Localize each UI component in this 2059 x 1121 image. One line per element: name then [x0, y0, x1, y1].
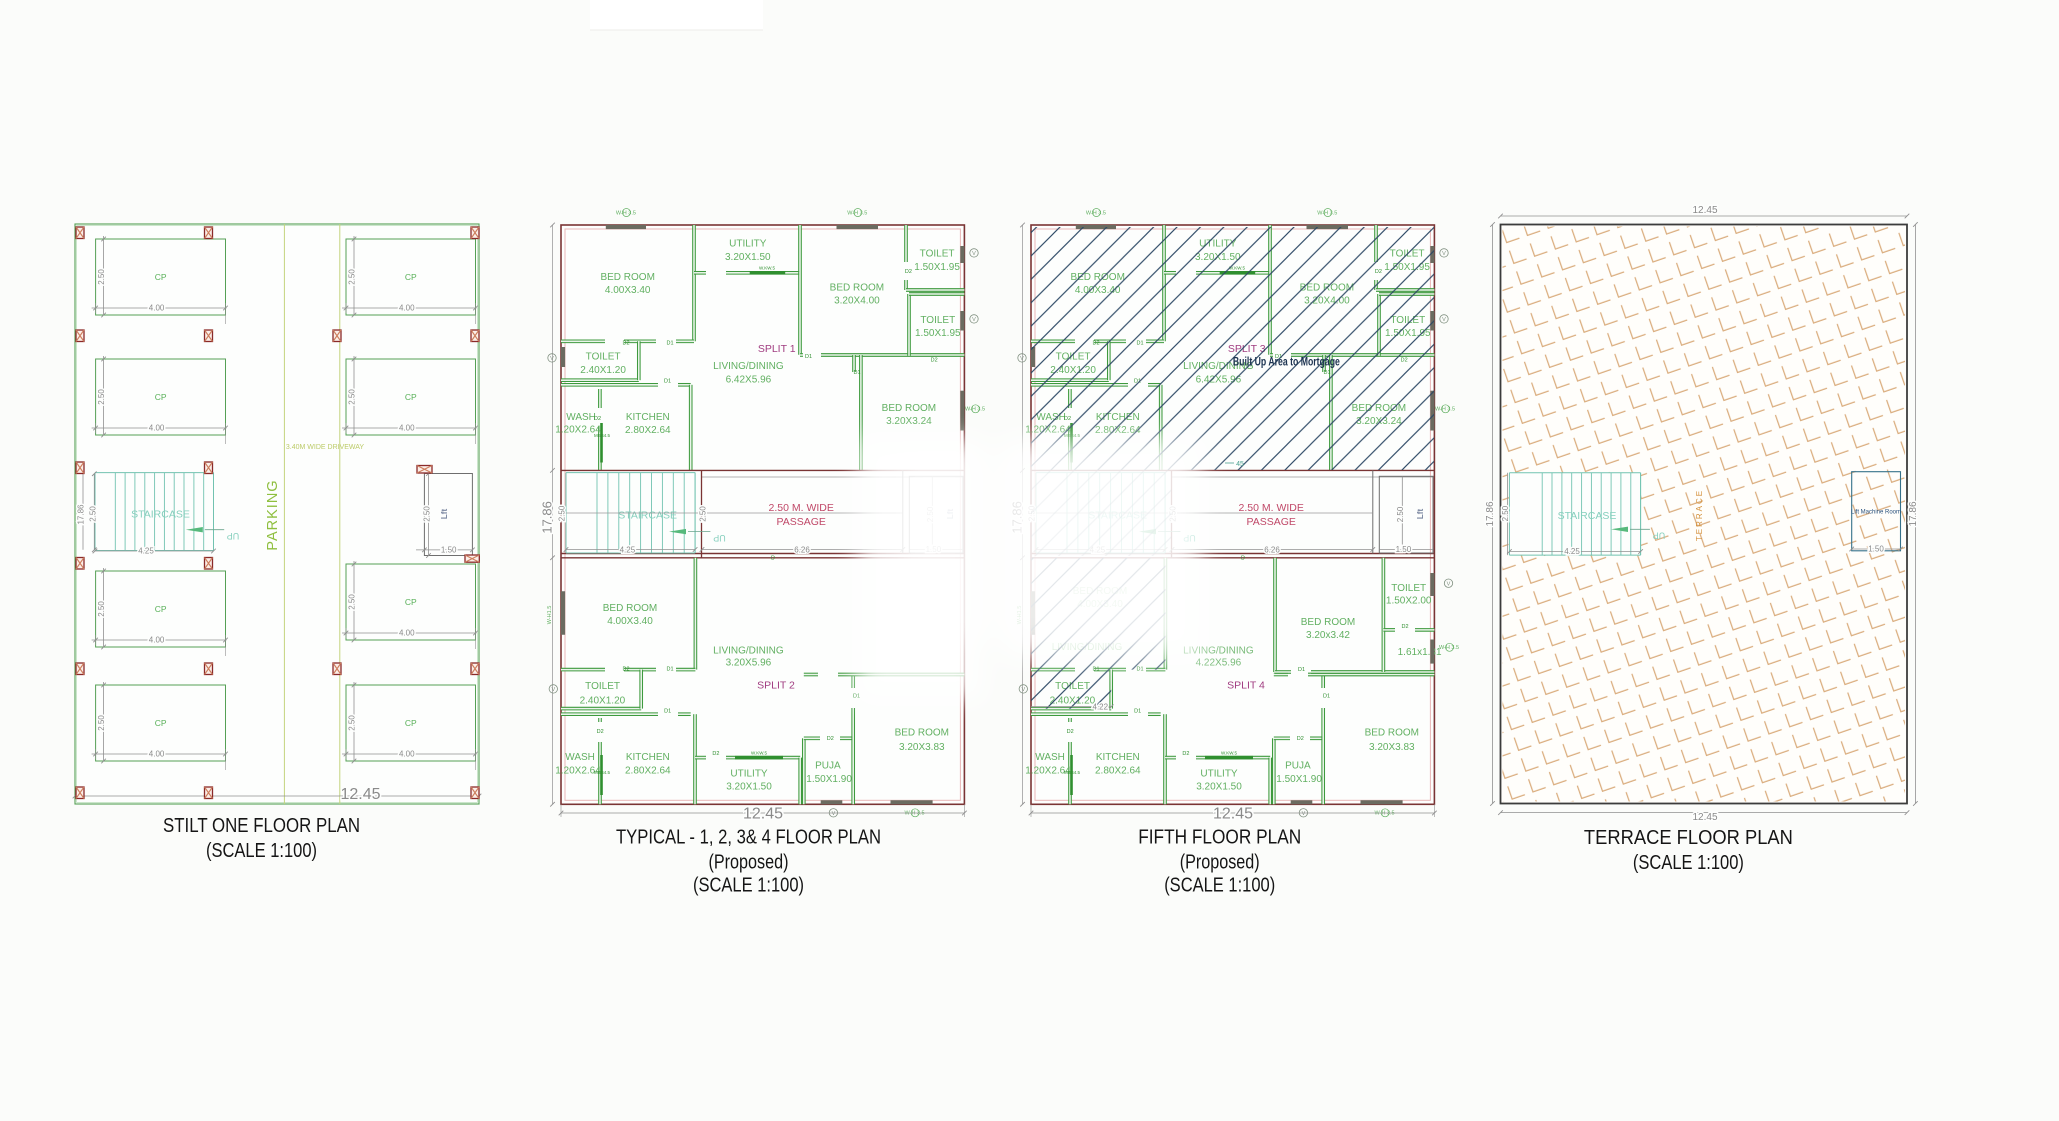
svg-text:45: 45	[1236, 461, 1244, 468]
svg-text:17.86: 17.86	[1908, 501, 1919, 526]
svg-text:4.25: 4.25	[620, 545, 636, 554]
svg-text:1.50X1.95: 1.50X1.95	[914, 262, 960, 273]
svg-text:V: V	[1442, 251, 1446, 257]
svg-text:2.50: 2.50	[97, 269, 106, 285]
svg-text:MBB4.5: MBB4.5	[1064, 770, 1081, 775]
svg-text:12.45: 12.45	[743, 806, 783, 823]
svg-text:D1: D1	[664, 379, 671, 385]
svg-text:UTILITY: UTILITY	[730, 769, 768, 780]
svg-text:2.80X2.64: 2.80X2.64	[625, 765, 671, 776]
svg-text:D: D	[771, 556, 775, 562]
svg-text:UP: UP	[713, 533, 726, 543]
svg-text:3.20x3.42: 3.20x3.42	[1306, 630, 1350, 641]
svg-text:2.50: 2.50	[1396, 506, 1405, 522]
svg-text:W-H 3.5: W-H 3.5	[1439, 645, 1459, 651]
svg-text:D1: D1	[1298, 667, 1305, 673]
svg-text:2.50 M. WIDE: 2.50 M. WIDE	[1239, 502, 1304, 514]
svg-text:W-H 3.5: W-H 3.5	[1375, 811, 1395, 817]
svg-text:W-H 3.5: W-H 3.5	[965, 407, 985, 413]
svg-text:TOILET: TOILET	[586, 352, 621, 363]
svg-text:17.86: 17.86	[77, 504, 86, 525]
svg-text:2.50: 2.50	[1501, 505, 1510, 521]
svg-text:2.50 M. WIDE: 2.50 M. WIDE	[769, 502, 834, 514]
svg-text:D2: D2	[1401, 624, 1408, 630]
svg-text:WASH: WASH	[565, 752, 595, 763]
svg-text:KITCHEN: KITCHEN	[626, 752, 670, 763]
svg-text:4.00: 4.00	[149, 304, 165, 313]
svg-text:6.26: 6.26	[794, 545, 810, 554]
svg-text:V: V	[832, 811, 836, 817]
svg-text:1.61x1.31: 1.61x1.31	[1398, 647, 1442, 658]
svg-text:2.40X1.20: 2.40X1.20	[580, 696, 626, 707]
svg-text:PUJA: PUJA	[815, 761, 841, 772]
svg-text:4.00: 4.00	[399, 750, 415, 759]
svg-text:D2: D2	[594, 416, 601, 422]
svg-text:3.20X3.83: 3.20X3.83	[1369, 742, 1415, 753]
svg-text:4.00: 4.00	[399, 424, 415, 433]
svg-text:MBB4.5: MBB4.5	[594, 770, 611, 775]
svg-text:D2: D2	[597, 729, 604, 735]
svg-text:3.20X1.50: 3.20X1.50	[726, 782, 772, 793]
svg-text:UP: UP	[227, 531, 240, 541]
svg-text:STILT ONE FLOOR PLAN: STILT ONE FLOOR PLAN	[163, 815, 360, 837]
svg-text:V: V	[1447, 581, 1451, 587]
svg-text:3.20X1.50: 3.20X1.50	[1196, 782, 1242, 793]
svg-text:D1: D1	[664, 709, 671, 715]
svg-text:1.50: 1.50	[441, 545, 457, 554]
svg-text:TYPICAL - 1, 2, 3& 4 FLOOR PLA: TYPICAL - 1, 2, 3& 4 FLOOR PLAN	[616, 825, 881, 848]
svg-text:BED ROOM: BED ROOM	[1301, 617, 1355, 628]
svg-text:D2: D2	[827, 736, 834, 742]
svg-text:W.KW.5: W.KW.5	[759, 266, 776, 271]
svg-text:1.50X2.00: 1.50X2.00	[1386, 595, 1432, 606]
svg-text:3.20X4.00: 3.20X4.00	[834, 296, 880, 307]
svg-text:STAIRCASE: STAIRCASE	[1558, 510, 1617, 522]
svg-text:WASH: WASH	[566, 412, 596, 423]
svg-text:LIVING/DINING: LIVING/DINING	[713, 361, 784, 372]
svg-text:12.45: 12.45	[1692, 205, 1717, 216]
svg-text:(SCALE 1:100): (SCALE 1:100)	[206, 840, 317, 862]
svg-text:CP: CP	[155, 604, 167, 614]
svg-text:W-H 3.5: W-H 3.5	[1317, 210, 1337, 216]
svg-text:BED ROOM: BED ROOM	[882, 403, 936, 414]
svg-text:CP: CP	[155, 718, 167, 728]
svg-text:4.22: 4.22	[1093, 703, 1109, 712]
svg-text:17.86: 17.86	[1485, 501, 1496, 526]
svg-text:2.50: 2.50	[97, 715, 106, 731]
svg-text:CP: CP	[405, 392, 417, 402]
svg-text:PASSAGE: PASSAGE	[776, 516, 825, 528]
svg-text:UP: UP	[1653, 531, 1666, 541]
svg-text:Lft: Lft	[1416, 509, 1425, 520]
svg-text:3.20X5.96: 3.20X5.96	[726, 658, 772, 669]
svg-text:D2: D2	[1182, 751, 1189, 757]
svg-text:PASSAGE: PASSAGE	[1246, 516, 1295, 528]
svg-text:V: V	[1442, 317, 1446, 323]
svg-text:4.00X3.40: 4.00X3.40	[607, 616, 653, 627]
svg-text:4.00: 4.00	[149, 636, 165, 645]
svg-text:2.50: 2.50	[348, 594, 357, 610]
svg-text:1.50: 1.50	[1396, 545, 1412, 554]
svg-text:3.20X3.83: 3.20X3.83	[899, 742, 945, 753]
svg-text:UTILITY: UTILITY	[729, 238, 767, 249]
svg-text:V: V	[972, 251, 976, 257]
svg-text:4.25: 4.25	[138, 547, 154, 556]
svg-text:4.00: 4.00	[399, 629, 415, 638]
svg-text:D2: D2	[1067, 729, 1074, 735]
svg-text:FIFTH FLOOR PLAN: FIFTH FLOOR PLAN	[1138, 825, 1301, 848]
svg-text:W-H 3.5: W-H 3.5	[1435, 407, 1455, 413]
svg-text:4.00: 4.00	[149, 750, 165, 759]
svg-text:D1: D1	[1323, 694, 1330, 700]
svg-text:STAIRCASE: STAIRCASE	[618, 510, 677, 522]
svg-text:D1: D1	[666, 341, 673, 347]
svg-text:6.42X5.96: 6.42X5.96	[726, 374, 772, 385]
svg-text:(SCALE 1:100): (SCALE 1:100)	[1164, 874, 1275, 897]
svg-text:D2: D2	[931, 358, 938, 364]
svg-text:D1: D1	[805, 354, 812, 360]
svg-text:2.50: 2.50	[348, 269, 357, 285]
svg-text:4.00: 4.00	[149, 424, 165, 433]
svg-text:2.50: 2.50	[423, 506, 432, 522]
svg-text:W-H 3.5: W-H 3.5	[905, 811, 925, 817]
svg-text:V: V	[1020, 356, 1024, 362]
svg-text:MBB4.5: MBB4.5	[594, 433, 611, 438]
svg-text:BED ROOM: BED ROOM	[600, 272, 654, 283]
svg-text:D2: D2	[712, 751, 719, 757]
svg-text:12.45: 12.45	[340, 786, 380, 803]
svg-text:2.40X1.20: 2.40X1.20	[580, 365, 626, 376]
svg-text:2.50: 2.50	[97, 601, 106, 617]
svg-text:CP: CP	[155, 272, 167, 282]
svg-text:BED ROOM: BED ROOM	[895, 728, 949, 739]
svg-text:3.20X3.24: 3.20X3.24	[886, 416, 932, 427]
svg-text:V: V	[1302, 811, 1306, 817]
svg-text:12.45: 12.45	[1213, 806, 1253, 823]
svg-text:CP: CP	[405, 597, 417, 607]
svg-text:2.50: 2.50	[348, 715, 357, 731]
svg-text:2.50: 2.50	[699, 506, 708, 522]
svg-text:W-H 3.5: W-H 3.5	[616, 210, 636, 216]
svg-text:Lft: Lft	[440, 509, 449, 520]
svg-text:(Proposed): (Proposed)	[709, 850, 789, 873]
svg-text:1.50X1.90: 1.50X1.90	[806, 774, 852, 785]
svg-text:W.KW.5: W.KW.5	[1221, 751, 1238, 756]
svg-text:BED ROOM: BED ROOM	[1365, 728, 1419, 739]
svg-text:2.50: 2.50	[89, 506, 98, 522]
svg-text:CP: CP	[405, 272, 417, 282]
svg-text:W-H1.5: W-H1.5	[547, 606, 553, 625]
svg-text:TERRACE: TERRACE	[1695, 489, 1704, 541]
svg-text:2.50: 2.50	[97, 389, 106, 405]
svg-text:D2: D2	[622, 667, 629, 673]
svg-text:3.20X1.50: 3.20X1.50	[725, 252, 771, 263]
svg-text:4.00X3.40: 4.00X3.40	[605, 285, 651, 296]
svg-text:W.KW.5: W.KW.5	[751, 751, 768, 756]
svg-text:SPLIT 2: SPLIT 2	[757, 680, 795, 692]
svg-text:1.50X1.90: 1.50X1.90	[1276, 774, 1322, 785]
svg-text:D1: D1	[1134, 709, 1141, 715]
svg-text:(Proposed): (Proposed)	[1180, 850, 1260, 873]
svg-text:W-H 3.5: W-H 3.5	[847, 210, 867, 216]
svg-text:KITCHEN: KITCHEN	[1096, 752, 1140, 763]
svg-text:TOILET: TOILET	[920, 249, 955, 260]
svg-text:CP: CP	[405, 718, 417, 728]
svg-text:2.80X2.64: 2.80X2.64	[1095, 765, 1141, 776]
svg-text:V: V	[1021, 687, 1025, 693]
svg-text:STAIRCASE: STAIRCASE	[131, 509, 190, 521]
svg-text:W-H 3.5: W-H 3.5	[1086, 210, 1106, 216]
svg-text:SPLIT 4: SPLIT 4	[1227, 680, 1265, 692]
svg-text:PARKING: PARKING	[265, 479, 281, 550]
svg-text:V: V	[550, 356, 554, 362]
svg-text:Lift Machine Room: Lift Machine Room	[1851, 510, 1901, 516]
svg-text:TOILET: TOILET	[585, 681, 620, 692]
svg-text:6.26: 6.26	[1264, 545, 1280, 554]
svg-text:BED ROOM: BED ROOM	[830, 282, 884, 293]
svg-text:D1: D1	[666, 667, 673, 673]
svg-text:Built Up Area to Mortgage: Built Up Area to Mortgage	[1233, 357, 1340, 369]
svg-text:2.50: 2.50	[558, 505, 567, 521]
svg-text:(SCALE 1:100): (SCALE 1:100)	[693, 874, 804, 897]
svg-text:D2: D2	[905, 269, 912, 275]
svg-text:V: V	[972, 317, 976, 323]
svg-text:KITCHEN: KITCHEN	[626, 412, 670, 423]
svg-text:TOILET: TOILET	[920, 315, 955, 326]
svg-text:4.25: 4.25	[1564, 547, 1580, 556]
svg-text:V: V	[551, 687, 555, 693]
svg-text:SPLIT 1: SPLIT 1	[758, 343, 796, 355]
svg-text:2.50: 2.50	[348, 389, 357, 405]
svg-text:12.45: 12.45	[1692, 812, 1717, 823]
svg-text:1.50: 1.50	[1868, 545, 1884, 554]
svg-text:WASH: WASH	[1035, 752, 1065, 763]
svg-text:3.40M WIDE DRIVEWAY: 3.40M WIDE DRIVEWAY	[286, 444, 365, 451]
svg-text:17.86: 17.86	[540, 501, 555, 534]
svg-text:BED ROOM: BED ROOM	[603, 603, 657, 614]
svg-text:2.80X2.64: 2.80X2.64	[625, 425, 671, 436]
svg-text:UTILITY: UTILITY	[1200, 769, 1238, 780]
svg-text:PUJA: PUJA	[1285, 761, 1311, 772]
svg-text:D2: D2	[1297, 736, 1304, 742]
svg-text:D1: D1	[853, 370, 860, 376]
svg-text:LIVING/DINING: LIVING/DINING	[713, 646, 784, 657]
svg-text:4.00: 4.00	[399, 304, 415, 313]
svg-text:CP: CP	[155, 392, 167, 402]
svg-text:TOILET: TOILET	[1391, 583, 1426, 594]
svg-text:1.50X1.95: 1.50X1.95	[915, 328, 961, 339]
svg-text:(SCALE 1:100): (SCALE 1:100)	[1633, 851, 1744, 874]
svg-text:TERRACE FLOOR PLAN: TERRACE FLOOR PLAN	[1584, 826, 1793, 849]
svg-text:D2: D2	[622, 341, 629, 347]
svg-text:D: D	[1241, 556, 1245, 562]
